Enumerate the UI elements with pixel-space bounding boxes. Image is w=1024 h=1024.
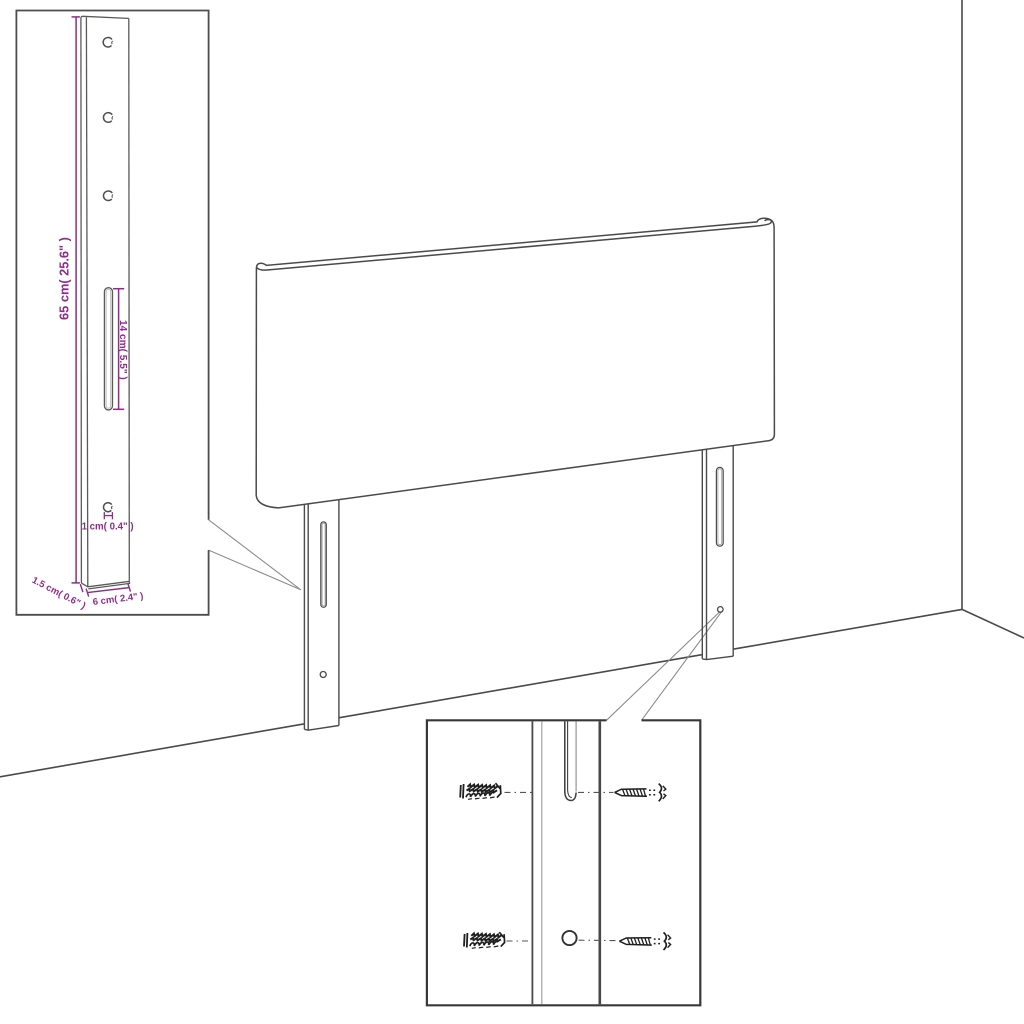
- svg-text:6 cm( 2.4" ): 6 cm( 2.4" ): [92, 591, 144, 608]
- svg-text:14 cm( 5.5" ): 14 cm( 5.5" ): [117, 320, 128, 380]
- svg-text:1.5 cm( 0.6" ): 1.5 cm( 0.6" ): [30, 575, 87, 612]
- svg-text:1 cm( 0.4" ): 1 cm( 0.4" ): [82, 522, 134, 533]
- svg-text:65 cm( 25.6" ): 65 cm( 25.6" ): [56, 237, 71, 320]
